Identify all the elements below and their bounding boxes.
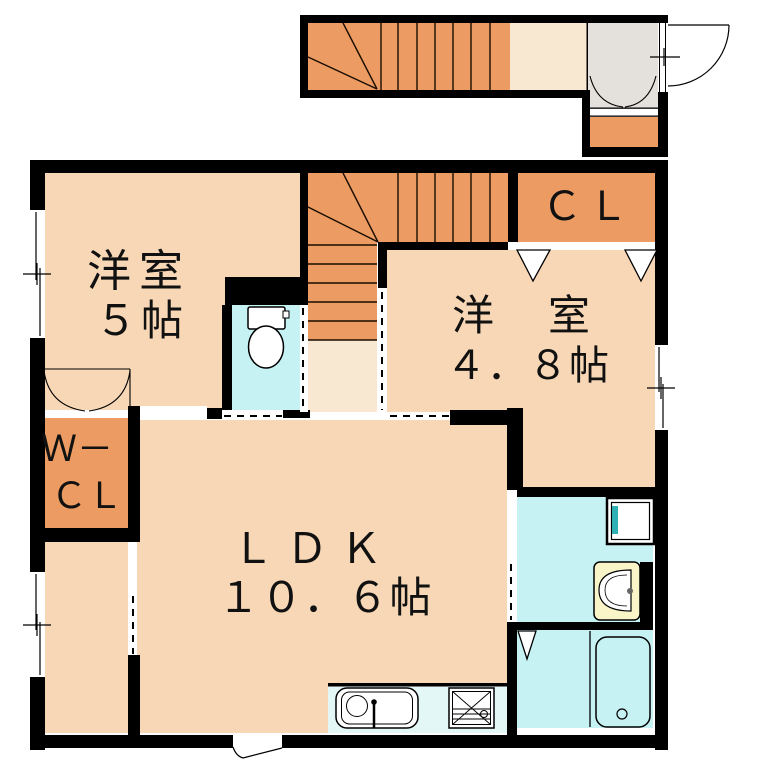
- room2-name-label: 洋 室: [452, 295, 596, 337]
- stairs-2f-landing: [308, 340, 377, 412]
- closet-opening: [518, 242, 655, 250]
- stairs-2f-run: [308, 242, 377, 340]
- closet-cl-label: ＣＬ: [542, 187, 634, 227]
- washing-machine-icon: [607, 498, 654, 544]
- room2-floor-lower: [523, 412, 655, 487]
- room1-size-label: ５帖: [95, 300, 187, 342]
- stove-icon: [449, 688, 494, 728]
- wcl-label-line2: ＣＬ: [51, 479, 123, 515]
- landing-opening: [310, 412, 378, 420]
- room2-size-label: ４．８帖: [446, 346, 610, 386]
- porch-step: [590, 117, 658, 147]
- bathroom-floor: [517, 630, 653, 728]
- side-room-floor: [45, 542, 128, 733]
- room1-doorway: [140, 406, 207, 420]
- ldk-exterior-door-opening: [233, 734, 282, 750]
- landing-1f: [510, 23, 588, 90]
- stairs-2f-toprun: [308, 173, 508, 242]
- first-floor-entry: [300, 15, 729, 157]
- wcl-opening: [45, 410, 128, 418]
- stairs-1f: [308, 23, 510, 90]
- ldk-size-label: １０．６帖: [217, 577, 432, 619]
- floorplan-page: 洋室 ５帖 ＣＬ 洋 室 ４．８帖 Ｗ－ ＣＬ ＬＤＫ １０．６帖: [0, 0, 758, 776]
- washbasin-icon: [594, 562, 640, 620]
- wcl-label-line1: Ｗ－: [41, 432, 113, 468]
- room1-name-label: 洋室: [87, 250, 191, 294]
- ldk-name-label: ＬＤＫ: [232, 528, 394, 570]
- floorplan-drawing: [0, 0, 758, 776]
